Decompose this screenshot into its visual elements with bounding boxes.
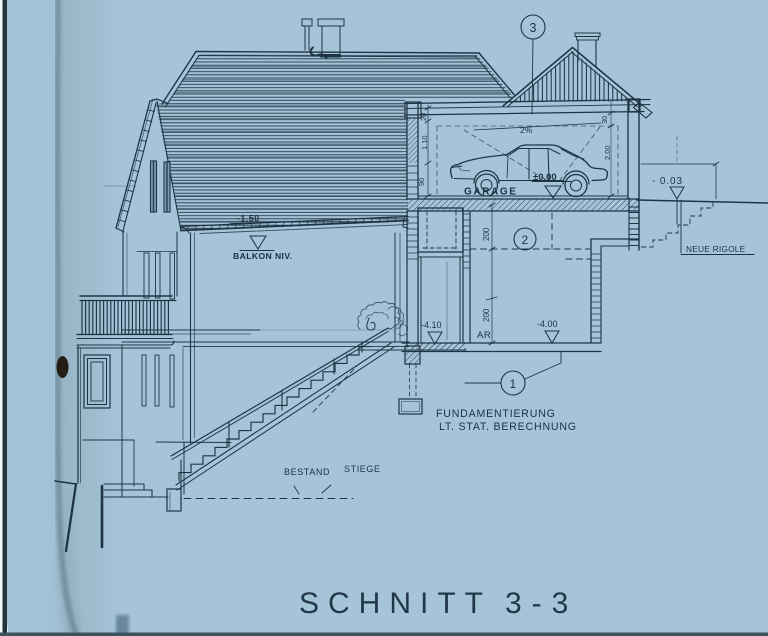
svg-text:- 0.03: - 0.03 — [652, 176, 683, 187]
svg-text:2: 2 — [522, 233, 529, 247]
svg-text:90: 90 — [417, 178, 426, 186]
svg-text:AR: AR — [477, 330, 491, 341]
svg-text:SCHNITT: SCHNITT — [299, 587, 492, 620]
svg-text:STIEGE: STIEGE — [344, 464, 381, 474]
svg-text:200: 200 — [482, 227, 491, 241]
svg-text:2%: 2% — [520, 125, 533, 135]
svg-text:NEUE RIGOLE: NEUE RIGOLE — [686, 244, 746, 254]
svg-text:BESTAND: BESTAND — [284, 467, 330, 477]
svg-text:-1.50: -1.50 — [237, 214, 260, 224]
svg-text:FUNDAMENTIERUNG: FUNDAMENTIERUNG — [436, 408, 556, 420]
svg-text:3-3: 3-3 — [505, 587, 578, 620]
svg-text:1: 1 — [510, 377, 517, 391]
svg-text:BALKON NIV.: BALKON NIV. — [233, 251, 292, 261]
svg-text:20: 20 — [419, 113, 428, 121]
svg-text:30: 30 — [600, 116, 609, 124]
svg-text:-4.00: -4.00 — [537, 319, 558, 329]
svg-text:-4.10: -4.10 — [421, 320, 442, 330]
svg-text:2.00: 2.00 — [603, 145, 612, 160]
svg-text:1.10: 1.10 — [420, 135, 429, 150]
svg-text:3: 3 — [530, 21, 537, 35]
svg-text:200: 200 — [482, 308, 491, 322]
svg-text:LT. STAT. BERECHNUNG: LT. STAT. BERECHNUNG — [439, 421, 577, 433]
svg-text:GARAGE: GARAGE — [464, 187, 518, 198]
